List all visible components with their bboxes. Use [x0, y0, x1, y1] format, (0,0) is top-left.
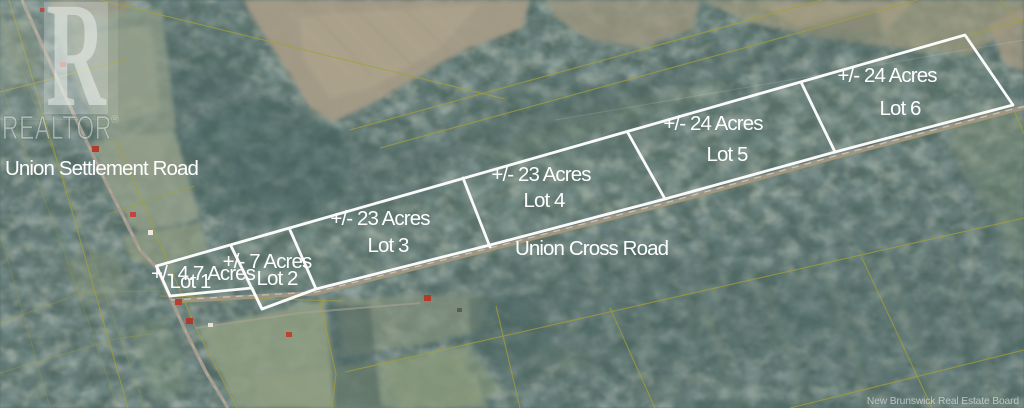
svg-text:Lot 4: Lot 4	[523, 189, 565, 212]
svg-text:Lot 2: Lot 2	[256, 267, 298, 290]
svg-text:+/- 23 Acres: +/- 23 Acres	[491, 163, 591, 186]
svg-text:Lot 1: Lot 1	[169, 270, 211, 293]
svg-text:®: ®	[111, 114, 119, 126]
svg-text:Lot 3: Lot 3	[367, 234, 409, 257]
svg-text:+/- 23 Acres: +/- 23 Acres	[330, 207, 430, 230]
svg-text:+/- 24 Acres: +/- 24 Acres	[663, 112, 763, 135]
svg-text:Lot 5: Lot 5	[706, 143, 748, 166]
svg-text:REALTOR: REALTOR	[2, 109, 112, 146]
svg-text:Union Settlement Road: Union Settlement Road	[5, 157, 199, 180]
svg-text:Union Cross Road: Union Cross Road	[515, 237, 669, 260]
svg-text:+/- 24 Acres: +/- 24 Acres	[837, 64, 937, 87]
svg-text:Lot 6: Lot 6	[879, 97, 921, 120]
svg-text:New Brunswick Real Estate Boar: New Brunswick Real Estate Board	[867, 396, 1020, 407]
